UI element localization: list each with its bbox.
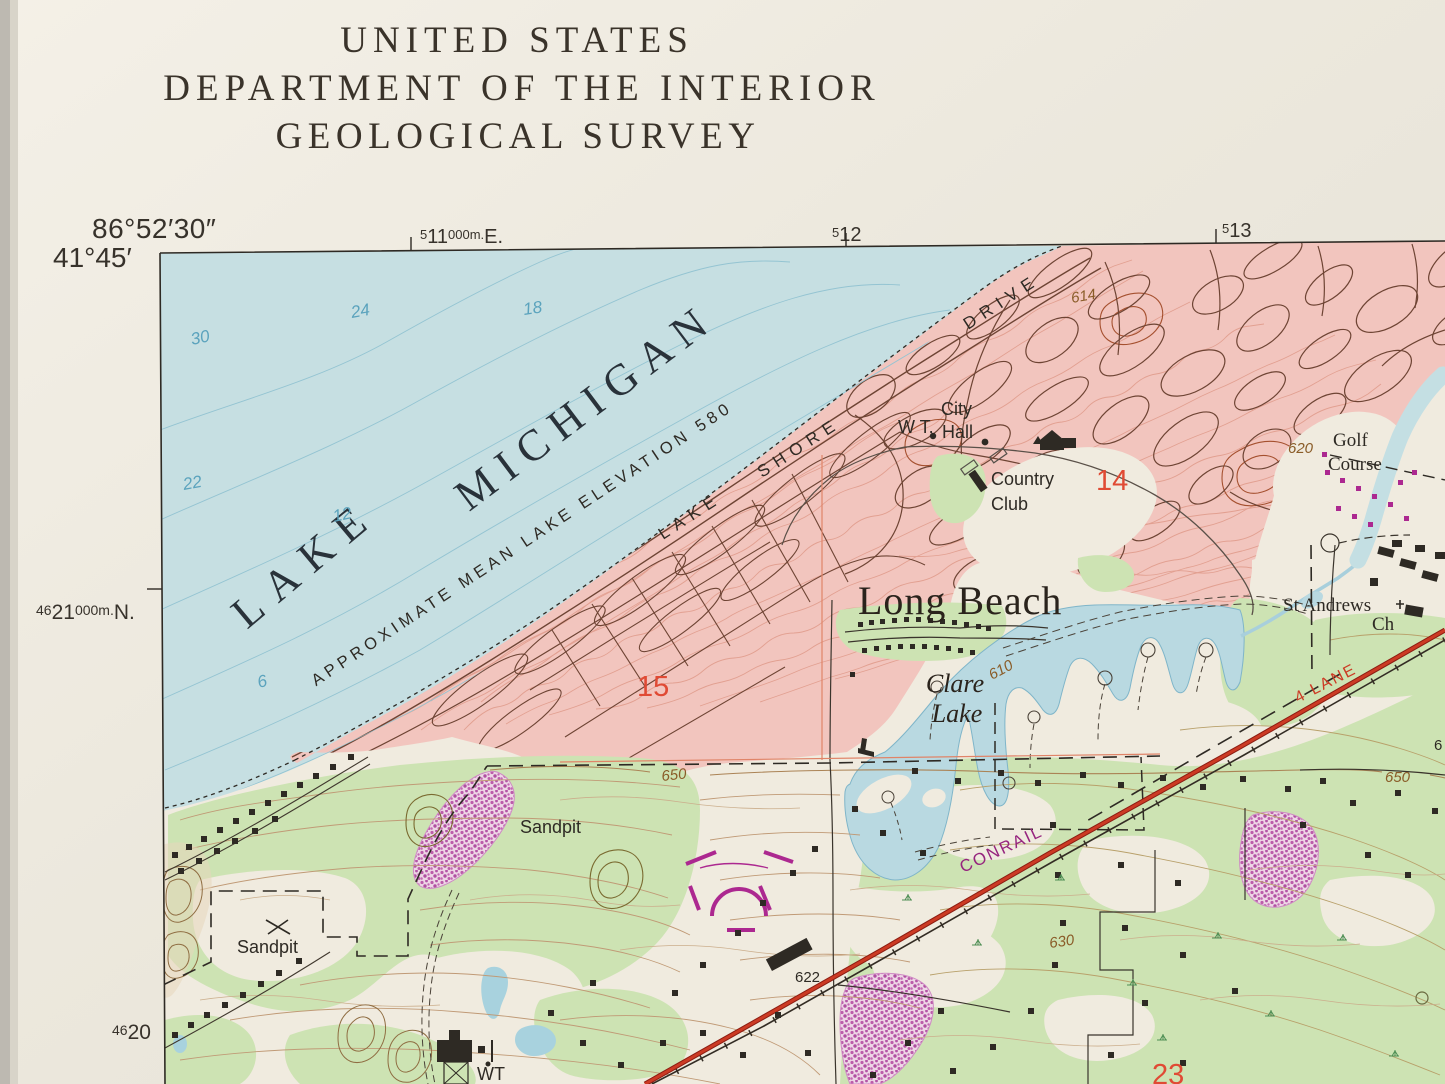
svg-text:Long Beach: Long Beach [858,578,1062,623]
svg-text:Clare: Clare [926,669,984,698]
svg-text:Course: Course [1328,454,1382,475]
svg-text:622: 622 [795,969,820,986]
svg-text:18: 18 [522,297,544,319]
svg-text:14: 14 [1096,465,1128,497]
svg-text:Club: Club [991,494,1028,514]
svg-text:WT: WT [477,1064,505,1084]
svg-text:Golf: Golf [1333,430,1369,451]
svg-text:DEPARTMENT OF THE INTERIOR: DEPARTMENT OF THE INTERIOR [163,68,880,109]
svg-text:24: 24 [348,300,371,322]
svg-text:Sandpit: Sandpit [237,937,298,957]
svg-text:GEOLOGICAL SURVEY: GEOLOGICAL SURVEY [276,116,761,157]
svg-text:22: 22 [180,472,203,494]
svg-text:15: 15 [637,671,669,703]
svg-text:620: 620 [1288,440,1314,457]
svg-text:St Andrews: St Andrews [1283,595,1371,616]
svg-text:650: 650 [1385,769,1411,786]
svg-text:650: 650 [661,765,688,785]
svg-text:City: City [941,399,972,419]
svg-text:W T.: W T. [898,417,934,437]
svg-text:UNITED STATES: UNITED STATES [340,20,694,61]
svg-text:6: 6 [1434,737,1442,754]
svg-text:86°52′30″: 86°52′30″ [92,213,216,244]
svg-text:41°45′: 41°45′ [53,242,132,273]
svg-text:Country: Country [991,469,1054,489]
svg-text:Lake: Lake [931,699,983,728]
svg-text:Ch: Ch [1372,614,1395,635]
svg-text:Hall: Hall [942,422,973,442]
svg-text:630: 630 [1048,932,1076,952]
svg-text:Sandpit: Sandpit [520,817,581,837]
svg-text:23: 23 [1152,1059,1184,1084]
